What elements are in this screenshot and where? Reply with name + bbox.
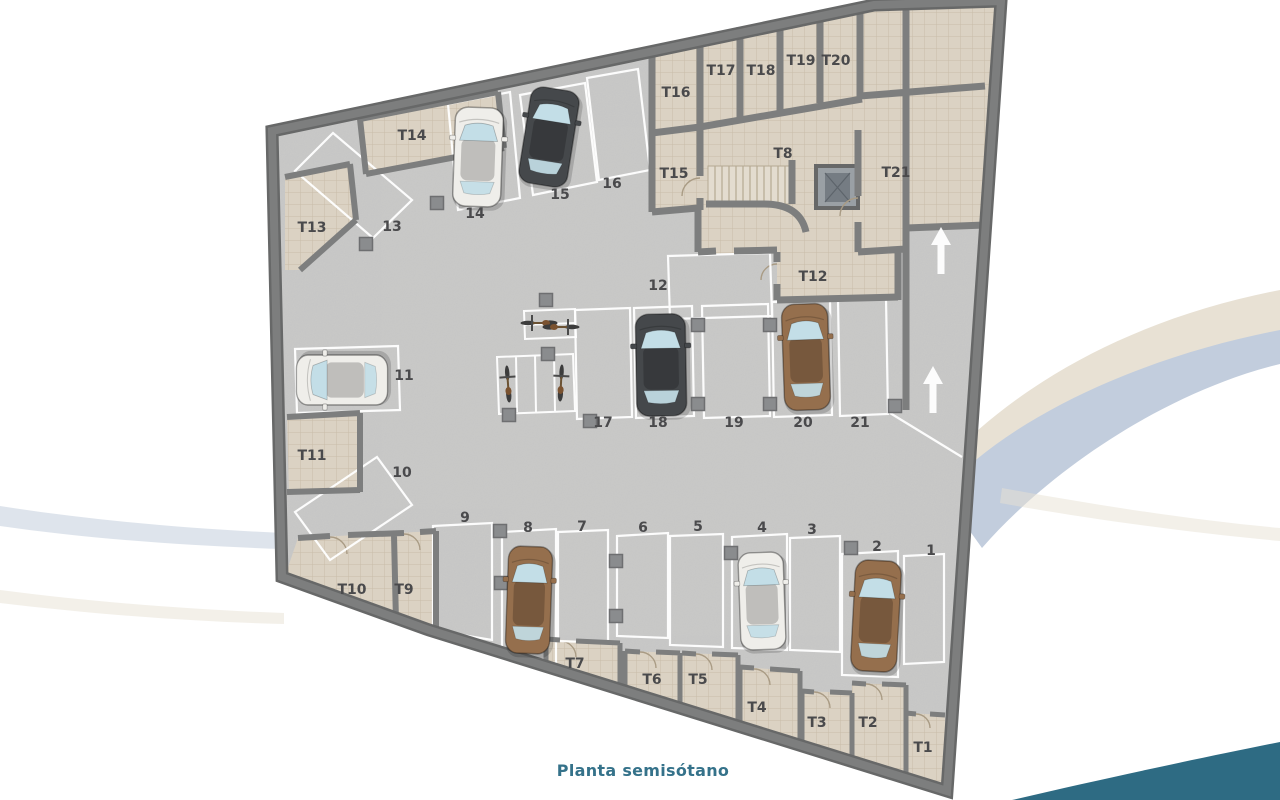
pillar-4 xyxy=(542,348,555,361)
car-spot-11 xyxy=(296,350,391,410)
label-6: 6 xyxy=(638,520,648,536)
label-21: 21 xyxy=(850,415,869,431)
pillar-14 xyxy=(610,610,623,623)
label-T13: T13 xyxy=(297,220,326,236)
label-T12: T12 xyxy=(798,269,827,285)
label-T1: T1 xyxy=(913,740,932,756)
stairs xyxy=(708,166,790,204)
car-spot-4 xyxy=(733,552,791,655)
car-spot-18 xyxy=(630,313,692,420)
label-T17: T17 xyxy=(706,63,735,79)
plan: T1T2T3T4T5T6T7T8T9T10T11T12T13T14T15T16T… xyxy=(260,0,1020,800)
label-13: 13 xyxy=(382,219,401,235)
pillar-16 xyxy=(845,542,858,555)
plan-caption: Planta semisótano xyxy=(557,761,729,780)
elevator xyxy=(816,166,858,208)
pillar-11 xyxy=(494,525,507,538)
label-2: 2 xyxy=(872,539,882,555)
label-5: 5 xyxy=(693,519,703,535)
label-T20: T20 xyxy=(821,53,850,69)
pillar-10 xyxy=(764,398,777,411)
label-8: 8 xyxy=(523,520,533,536)
pillar-3 xyxy=(540,294,553,307)
swoosh-teal-corner xyxy=(1012,742,1280,800)
floor-plan-page: T1T2T3T4T5T6T7T8T9T10T11T12T13T14T15T16T… xyxy=(0,0,1280,800)
label-3: 3 xyxy=(807,522,817,538)
swoosh-blue-left xyxy=(0,506,283,549)
label-T21: T21 xyxy=(881,165,910,181)
label-1: 1 xyxy=(926,543,936,559)
label-4: 4 xyxy=(757,520,767,536)
label-10: 10 xyxy=(392,465,412,481)
pillar-2 xyxy=(360,238,373,251)
pillar-1 xyxy=(431,197,444,210)
label-17: 17 xyxy=(593,415,612,431)
car-spot-8 xyxy=(500,546,557,659)
car-spot-20 xyxy=(776,303,835,415)
pillar-9 xyxy=(764,319,777,332)
label-T10: T10 xyxy=(337,582,366,598)
label-19: 19 xyxy=(724,415,743,431)
label-T19: T19 xyxy=(786,53,815,69)
label-T9: T9 xyxy=(394,582,413,598)
label-18: 18 xyxy=(648,415,667,431)
car-spot-14 xyxy=(447,106,509,211)
car-spot-2 xyxy=(845,559,907,677)
label-T3: T3 xyxy=(807,715,826,731)
label-T18: T18 xyxy=(746,63,775,79)
label-9: 9 xyxy=(460,510,470,526)
label-T7: T7 xyxy=(565,656,584,672)
pillar-5 xyxy=(503,409,516,422)
floor-plan-svg: T1T2T3T4T5T6T7T8T9T10T11T12T13T14T15T16T… xyxy=(0,0,1280,800)
label-20: 20 xyxy=(793,415,813,431)
label-16: 16 xyxy=(602,176,621,192)
swoosh-beige-right-streak xyxy=(1000,488,1280,541)
label-T8: T8 xyxy=(773,146,792,162)
label-T16: T16 xyxy=(661,85,690,101)
label-T5: T5 xyxy=(688,672,707,688)
label-T15: T15 xyxy=(659,166,688,182)
swoosh-beige-left xyxy=(0,590,284,624)
label-T14: T14 xyxy=(397,128,426,144)
label-T6: T6 xyxy=(642,672,661,688)
pillar-15 xyxy=(725,547,738,560)
label-14: 14 xyxy=(465,206,485,222)
pillar-7 xyxy=(692,319,705,332)
label-11: 11 xyxy=(394,368,413,384)
pillar-13 xyxy=(610,555,623,568)
label-T11: T11 xyxy=(297,448,326,464)
label-12: 12 xyxy=(648,278,667,294)
label-T2: T2 xyxy=(858,715,877,731)
pillar-17 xyxy=(889,400,902,413)
pillar-8 xyxy=(692,398,705,411)
label-7: 7 xyxy=(577,519,587,535)
label-T4: T4 xyxy=(747,700,767,716)
label-15: 15 xyxy=(550,187,569,203)
